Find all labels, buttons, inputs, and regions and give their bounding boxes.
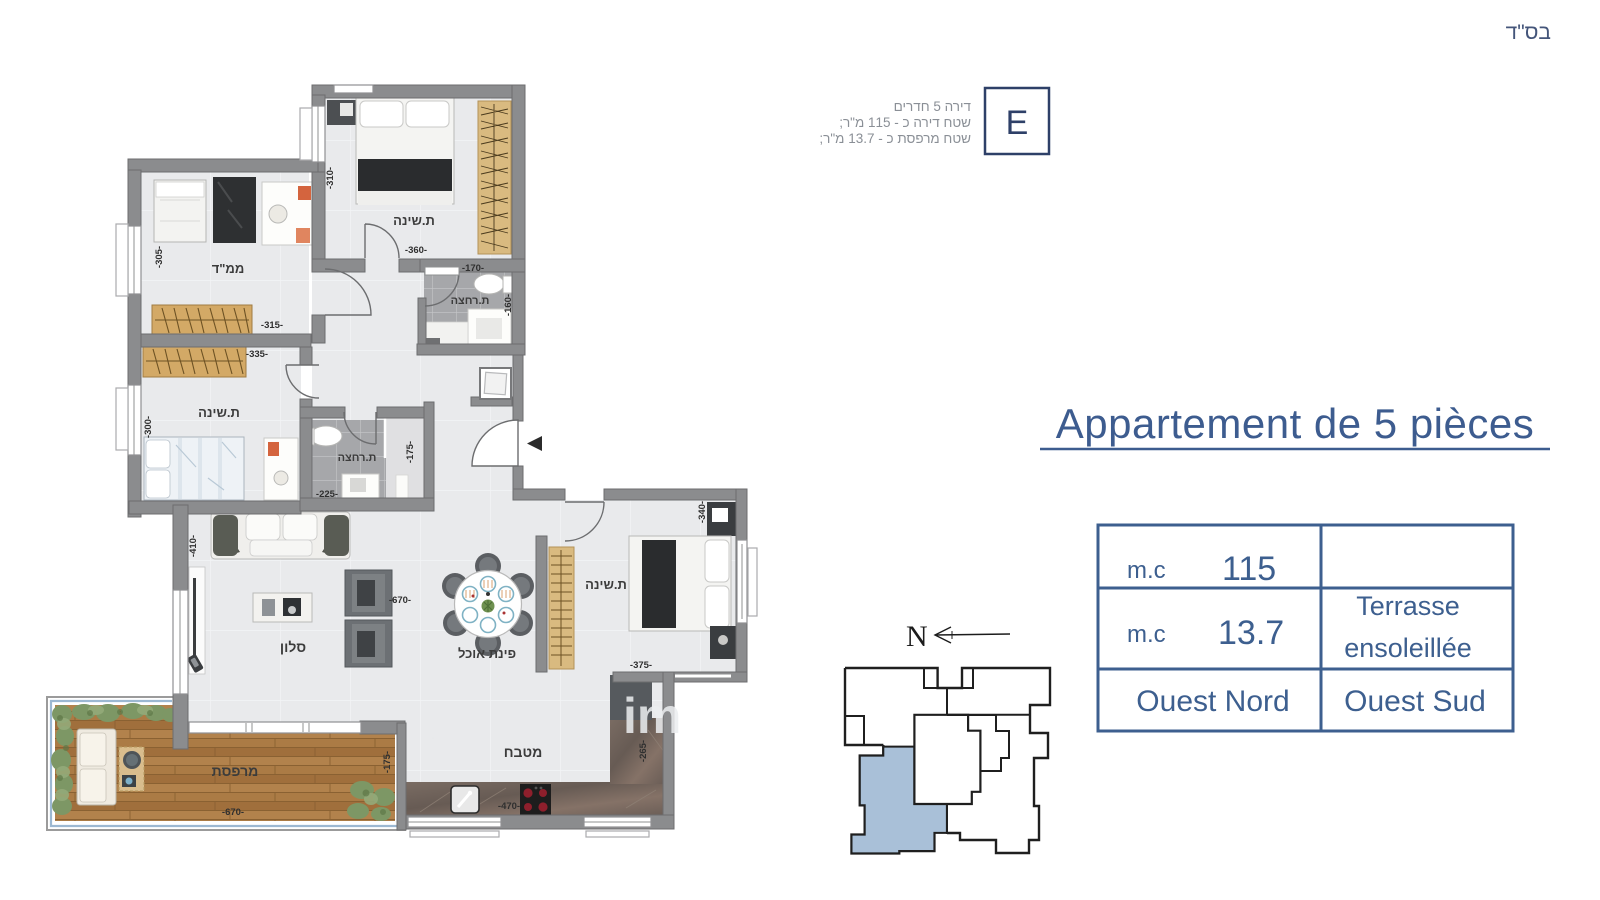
- svg-text:im: im: [623, 688, 681, 744]
- svg-text:13.7: 13.7: [1218, 614, 1284, 652]
- svg-text:מרפסת: מרפסת: [212, 763, 259, 779]
- svg-text:m.c: m.c: [1127, 621, 1166, 648]
- svg-text:-410-: -410-: [188, 535, 199, 557]
- svg-text:-375-: -375-: [630, 660, 652, 671]
- svg-text:115: 115: [1222, 550, 1276, 588]
- svg-text:ת.שינה: ת.שינה: [585, 577, 627, 592]
- svg-text:-305-: -305-: [154, 246, 165, 268]
- svg-text:Ouest Nord: Ouest Nord: [1136, 685, 1289, 718]
- svg-text:ת.שינה: ת.שינה: [393, 213, 435, 228]
- svg-text:Appartement de 5 pièces: Appartement de 5 pièces: [1056, 400, 1534, 447]
- svg-text:ממ"ד: ממ"ד: [212, 261, 245, 276]
- svg-text:-160-: -160-: [503, 294, 514, 316]
- svg-text:-175-: -175-: [405, 441, 416, 463]
- svg-text:-170-: -170-: [462, 263, 484, 274]
- svg-text:-335-: -335-: [246, 349, 268, 360]
- svg-text:-300-: -300-: [143, 416, 154, 438]
- svg-text:Terrasse: Terrasse: [1356, 591, 1460, 621]
- svg-text:-175-: -175-: [382, 751, 393, 773]
- svg-text:m.c: m.c: [1127, 557, 1166, 584]
- svg-text:-470-: -470-: [498, 801, 520, 812]
- svg-text:E: E: [1006, 104, 1029, 142]
- svg-text:Ouest Sud: Ouest Sud: [1344, 685, 1486, 718]
- svg-text:סלון: סלון: [280, 639, 306, 655]
- svg-text:ת.שינה: ת.שינה: [198, 405, 240, 420]
- svg-text:-340-: -340-: [697, 501, 708, 523]
- svg-text:-670-: -670-: [222, 807, 244, 818]
- svg-text:דירה 5 חדרים: דירה 5 חדרים: [894, 99, 972, 114]
- svg-text:מטבח: מטבח: [504, 744, 543, 760]
- svg-text:-315-: -315-: [261, 320, 283, 331]
- svg-text:ת.רחצה: ת.רחצה: [338, 452, 377, 464]
- svg-text:פינת אוכל: פינת אוכל: [458, 646, 516, 661]
- svg-text:-360-: -360-: [405, 245, 427, 256]
- svg-text:N: N: [906, 620, 928, 653]
- svg-text:שטח דירה כ - 115 מ"ר;: שטח דירה כ - 115 מ"ר;: [839, 115, 971, 130]
- svg-text:ensoleillée: ensoleillée: [1344, 633, 1472, 663]
- svg-text:-310-: -310-: [325, 167, 336, 189]
- svg-text:ת.רחצה: ת.רחצה: [451, 295, 490, 307]
- svg-text:שטח מרפסת כ - 13.7 מ"ר;: שטח מרפסת כ - 13.7 מ"ר;: [819, 131, 971, 146]
- svg-text:בס"ד: בס"ד: [1506, 21, 1551, 44]
- svg-text:-670-: -670-: [389, 595, 411, 606]
- svg-text:-225-: -225-: [316, 489, 338, 500]
